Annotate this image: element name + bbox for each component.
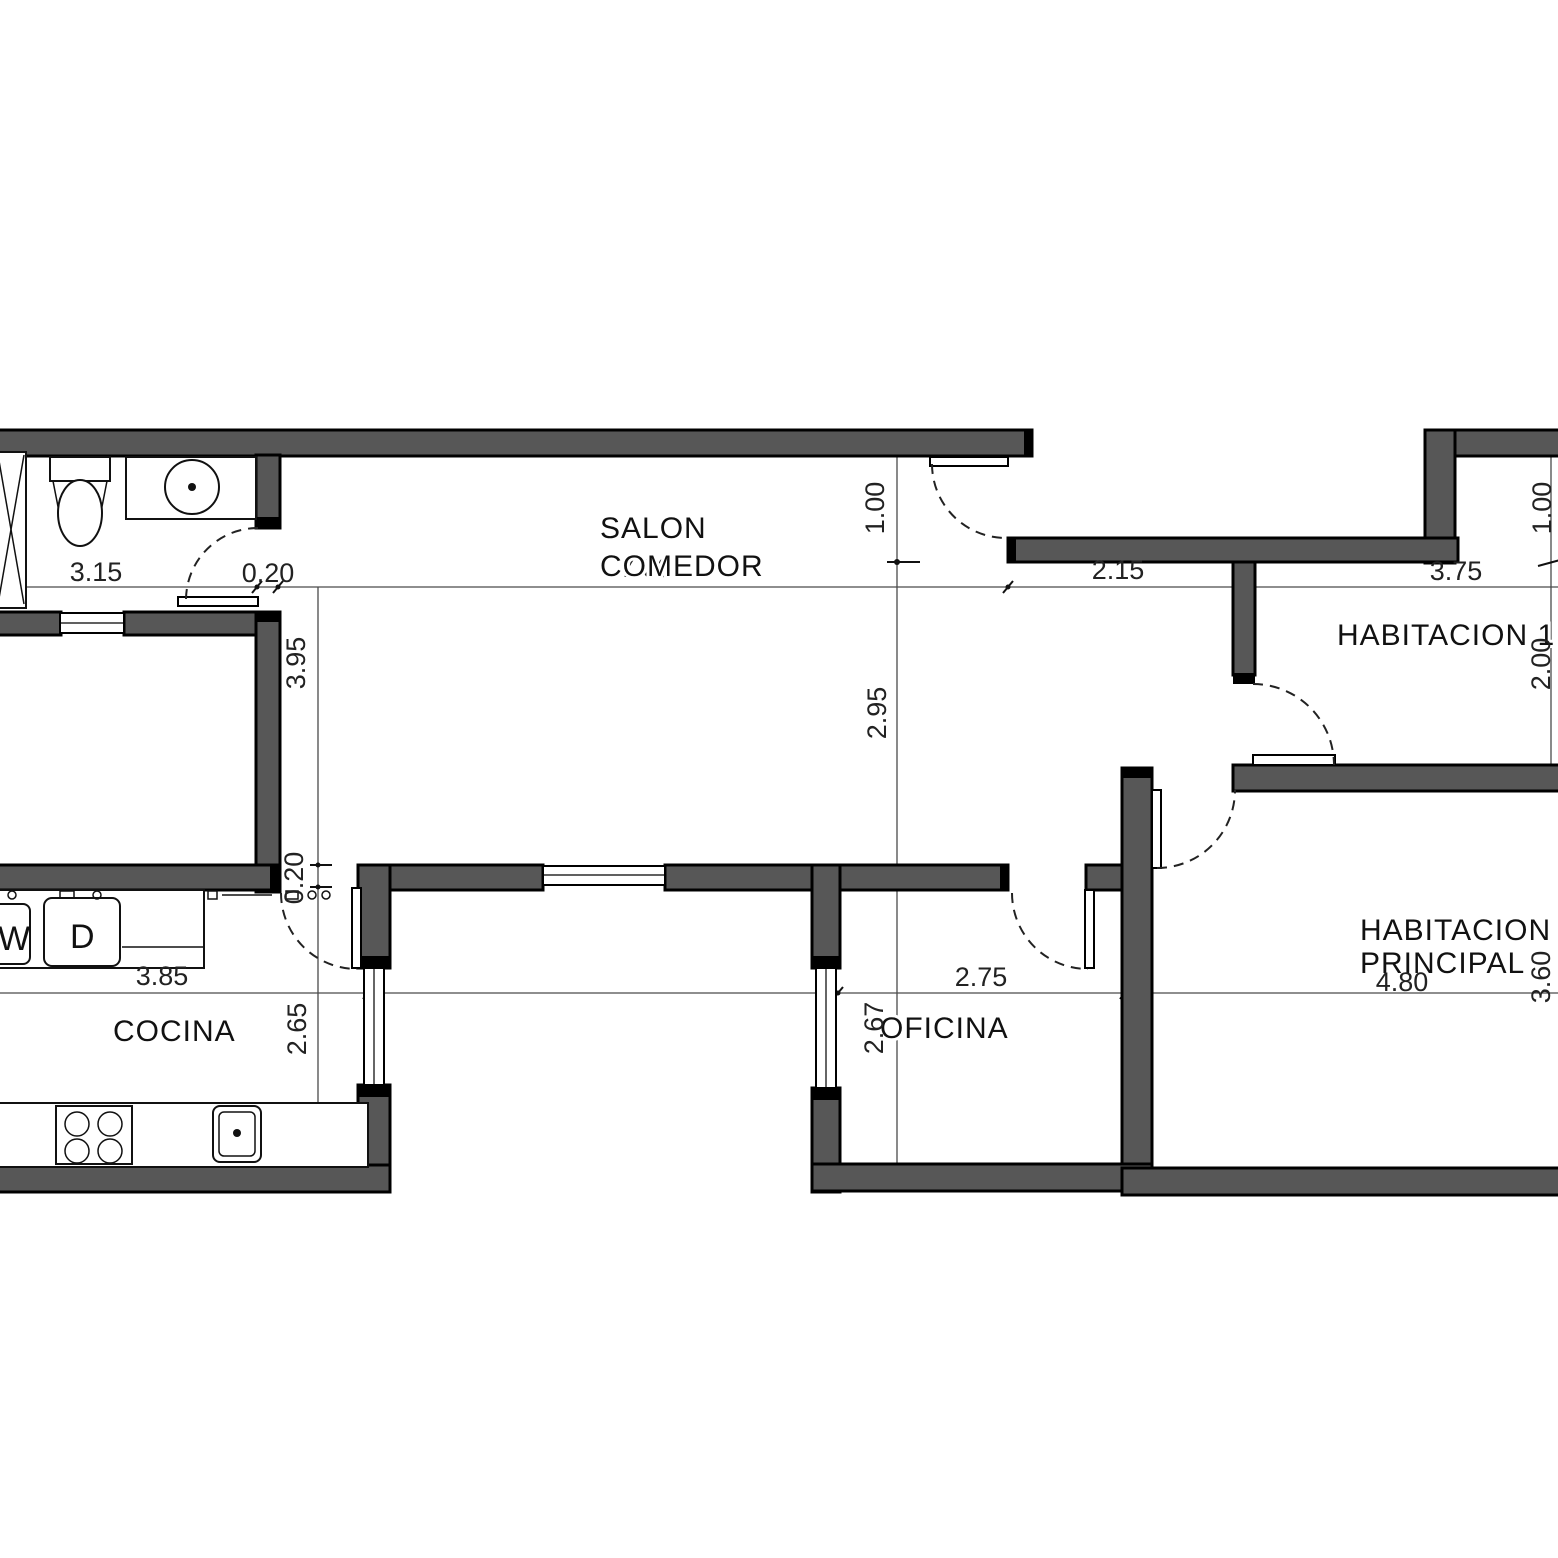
- wall-left-room-right: [256, 612, 280, 892]
- wall-principal-bottom: [1122, 1168, 1558, 1195]
- door-arc-entrance: [932, 464, 1006, 538]
- label-cocina: COCINA: [113, 1015, 236, 1048]
- sink-vanity: [126, 457, 256, 519]
- dim-salon-height: 2.95: [862, 687, 892, 740]
- door-leaf-bathroom: [178, 597, 258, 606]
- window-oficina: [816, 968, 836, 1088]
- dim-principal-width: 4.80: [1376, 967, 1429, 997]
- wall-bathroom-bottom-right: [124, 612, 258, 635]
- wall-kitchen-top: [0, 865, 280, 890]
- dim-hab1-notch: 1.00: [1527, 482, 1557, 535]
- door-leaf-oficina: [1085, 890, 1094, 968]
- door-leaf-entrance: [930, 457, 1008, 466]
- dim-left-room-height: 3.95: [281, 637, 311, 690]
- wall-cap-oficina-window-bottom: [812, 1088, 840, 1100]
- wall-oficina-top: [840, 865, 1008, 890]
- wall-salon-bottom-right: [665, 865, 815, 890]
- wall-cap-kitchen-window-top: [358, 956, 390, 968]
- wall-cap-oficina-window-top: [812, 956, 840, 968]
- label-dryer: D: [70, 918, 95, 956]
- dim-hall-width: 2.15: [1092, 555, 1145, 585]
- counter-detail-icon: [208, 891, 217, 899]
- toilet: [50, 457, 110, 546]
- dim-hab1-height: 2.00: [1526, 638, 1556, 691]
- floor-plan-svg: 7.00 SALON COMEDOR HABITACION 1 HABITACI…: [0, 0, 1558, 1558]
- wall-hab1-left: [1233, 562, 1255, 675]
- window-salon: [543, 866, 665, 885]
- wall-oficina-bottom: [812, 1164, 1152, 1191]
- wall-cap-principal-top: [1122, 768, 1152, 778]
- counter-knob-icon: [322, 891, 330, 899]
- dim-wall-top: 0.20: [242, 558, 295, 588]
- dim-bath-width: 3.15: [70, 557, 123, 587]
- dim-principal-height: 3.60: [1526, 951, 1556, 1004]
- wall-cap-entrance: [1024, 431, 1032, 455]
- dim-entry-offset: 1.00: [860, 482, 890, 535]
- floor-plan-canvas: 7.00 SALON COMEDOR HABITACION 1 HABITACI…: [0, 0, 1558, 1558]
- door-leaf-hab1: [1253, 755, 1335, 765]
- counter-knob-icon: [308, 891, 316, 899]
- dim-oficina-width: 2.75: [955, 962, 1008, 992]
- label-principal-line1: HABITACION: [1360, 914, 1551, 947]
- label-habitacion-1: HABITACION 1: [1337, 619, 1555, 652]
- wall-cap-oficina-door: [1000, 866, 1008, 890]
- wall-mid-horizontal: [1008, 538, 1458, 562]
- doors: [178, 457, 1335, 969]
- window-left-room: [60, 613, 124, 633]
- wall-cap-corner: [256, 612, 280, 622]
- dim-wall-mid: 0.20: [279, 852, 309, 905]
- wall-bathroom-bottom-left: [0, 612, 61, 635]
- door-principal: [1152, 790, 1235, 868]
- wall-top-exterior: [0, 430, 1032, 456]
- wall-kitchen-right-upper: [358, 865, 390, 968]
- door-leaf-kitchen: [352, 888, 361, 968]
- wall-hab1-bottom: [1233, 765, 1558, 791]
- wall-cap-hab1: [1233, 673, 1255, 684]
- bathroom-fixtures: [0, 452, 256, 608]
- door-entrance: [930, 457, 1008, 538]
- window-kitchen: [364, 968, 384, 1085]
- door-hab1: [1253, 684, 1335, 765]
- wall-cap-mid-left: [1008, 539, 1016, 561]
- door-arc-principal: [1157, 790, 1235, 868]
- label-oficina: OFICINA: [880, 1012, 1009, 1045]
- label-salon-line2: COMEDOR: [600, 550, 764, 583]
- dim-cocina-width: 3.85: [136, 961, 189, 991]
- wall-principal-left: [1122, 768, 1152, 1192]
- dim-hab1-width: 3.75: [1430, 556, 1483, 586]
- door-arc-hab1: [1253, 684, 1334, 765]
- label-salon-line1: SALON: [600, 512, 707, 545]
- door-arc-oficina: [1012, 893, 1088, 969]
- wall-oficina-stub: [1086, 865, 1122, 890]
- shower: [0, 452, 26, 608]
- door-leaf-principal: [1152, 790, 1161, 868]
- kitchen-sink: [213, 1106, 261, 1162]
- wall-oficina-left-upper: [812, 865, 840, 968]
- label-washer: W: [0, 920, 30, 958]
- door-oficina: [1012, 890, 1094, 969]
- wall-cap-bathroom: [256, 517, 280, 528]
- dim-cocina-height: 2.65: [282, 1003, 312, 1056]
- wall-kitchen-bottom: [0, 1165, 390, 1192]
- walls: [0, 430, 1558, 1195]
- dim-oficina-height: 2.67: [859, 1002, 889, 1055]
- kitchen-counter: [0, 1103, 368, 1167]
- wall-cap-kitchen-window-bottom: [358, 1085, 390, 1097]
